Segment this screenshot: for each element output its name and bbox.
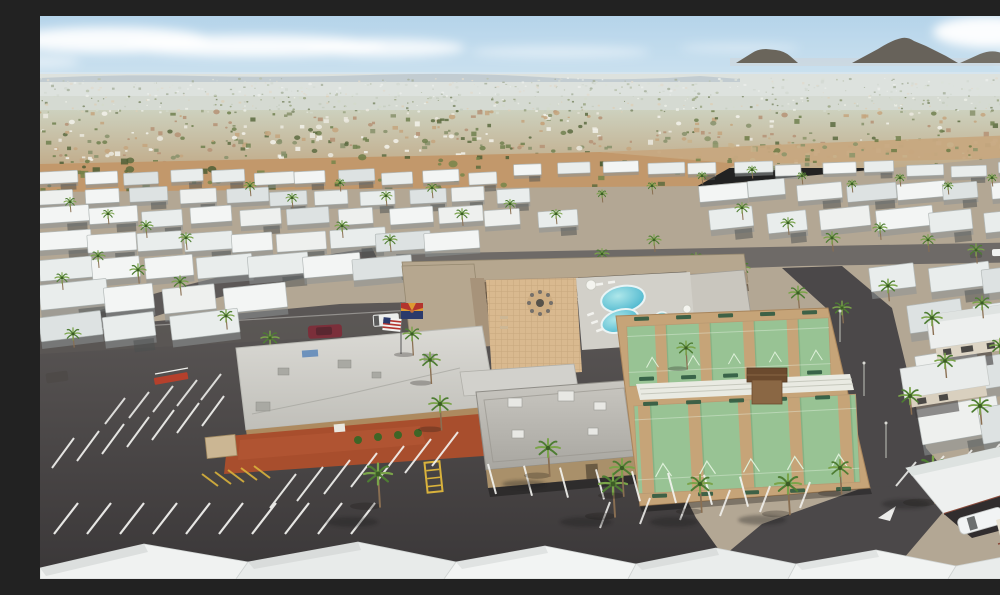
texture-dot	[985, 108, 986, 109]
texture-dot	[807, 100, 809, 102]
mobile-home	[314, 190, 348, 210]
texture-dot	[449, 161, 458, 168]
mobile-home-roof	[269, 190, 307, 206]
texture-dot	[59, 154, 63, 157]
mobile-home-roof	[314, 190, 348, 206]
texture-dot	[184, 125, 187, 128]
texture-dot	[927, 100, 930, 102]
aerial-photo-canvas	[40, 16, 1000, 579]
palm-shadow	[560, 517, 612, 527]
texture-dot	[975, 108, 977, 109]
palm-crown	[886, 284, 889, 287]
texture-dot	[682, 137, 687, 141]
texture-dot	[547, 107, 550, 110]
mobile-home	[648, 162, 685, 178]
ac-unit	[278, 368, 289, 375]
texture-dot	[567, 120, 570, 122]
texture-dot	[121, 159, 128, 165]
mobile-home-roof	[823, 162, 856, 174]
texture-dot	[255, 108, 257, 109]
roof-skylight	[302, 349, 318, 357]
texture-dot	[889, 97, 890, 98]
texture-dot	[821, 97, 822, 98]
kiosk-shed	[205, 434, 237, 458]
texture-dot	[544, 110, 546, 112]
palm-crown	[786, 482, 791, 487]
palm-shadow	[350, 503, 381, 510]
texture-dot	[344, 143, 348, 146]
texture-dot	[657, 103, 660, 105]
texture-dot	[102, 104, 104, 106]
texture-dot	[500, 141, 505, 145]
texture-dot	[435, 117, 439, 120]
palm-crown	[930, 316, 934, 320]
texture-dot	[910, 109, 912, 110]
texture-dot	[105, 97, 106, 98]
mobile-home-roof	[144, 254, 194, 279]
court-bench	[723, 373, 738, 378]
mobile-home-roof	[89, 205, 138, 224]
texture-dot	[585, 109, 587, 111]
palm-shadow	[676, 508, 702, 514]
texture-dot	[394, 99, 396, 100]
mobile-home-roof	[423, 169, 460, 183]
texture-dot	[703, 96, 705, 97]
texture-dot	[231, 104, 233, 105]
texture-dot	[796, 103, 798, 105]
texture-dot	[765, 99, 768, 101]
texture-dot	[823, 110, 826, 112]
texture-dot	[300, 125, 304, 129]
patio-umbrella	[586, 280, 596, 290]
texture-dot	[496, 112, 499, 114]
texture-dot	[854, 103, 856, 104]
palm-crown	[69, 201, 71, 203]
texture-dot	[77, 109, 78, 110]
palm-crown	[61, 277, 64, 280]
texture-dot	[914, 99, 916, 100]
texture-dot	[407, 112, 409, 114]
mobile-home	[775, 164, 801, 179]
palm-shadow	[668, 366, 688, 371]
texture-dot	[568, 110, 570, 112]
texture-dot	[67, 147, 71, 151]
texture-dot	[250, 117, 255, 121]
texture-dot	[272, 110, 273, 111]
palm-shadow	[818, 490, 842, 496]
mobile-home	[137, 231, 183, 257]
texture-dot	[378, 105, 382, 108]
texture-dot	[717, 136, 720, 138]
carport-shadow	[230, 182, 243, 189]
palm-shadow	[524, 472, 550, 478]
texture-dot	[422, 139, 428, 144]
texture-dot	[929, 106, 931, 107]
texture-dot	[529, 136, 532, 138]
texture-dot	[377, 109, 379, 111]
palm-crown	[796, 291, 799, 294]
light-pole-head	[863, 362, 866, 365]
texture-dot	[779, 111, 781, 113]
texture-dot	[417, 110, 420, 112]
texture-dot	[100, 122, 104, 125]
texture-dot	[567, 99, 570, 101]
texture-dot	[582, 110, 583, 111]
mobile-home-roof	[603, 161, 639, 173]
texture-dot	[461, 137, 465, 140]
texture-dot	[355, 110, 357, 111]
mobile-home-roof	[40, 229, 92, 251]
texture-dot	[927, 125, 930, 127]
texture-dot	[607, 104, 608, 105]
texture-dot	[451, 113, 454, 115]
palm-crown	[341, 225, 344, 228]
texture-dot	[244, 125, 247, 128]
texture-dot	[655, 138, 659, 140]
texture-dot	[295, 111, 296, 112]
texture-dot	[69, 130, 72, 132]
carport-shadow	[485, 185, 496, 192]
mobile-home	[484, 208, 521, 231]
texture-dot	[909, 112, 913, 115]
texture-dot	[167, 129, 172, 133]
texture-dot	[664, 111, 666, 112]
texture-dot	[125, 99, 128, 101]
palm-crown	[751, 169, 753, 171]
palm-crown	[698, 482, 702, 486]
texture-dot	[805, 158, 810, 161]
texture-dot	[568, 147, 572, 150]
texture-dot	[220, 104, 222, 106]
texture-dot	[472, 137, 477, 141]
courtyard-chair	[500, 326, 508, 329]
mobile-home	[389, 206, 434, 230]
texture-dot	[936, 110, 938, 111]
texture-dot	[135, 137, 137, 139]
texture-dot	[287, 112, 292, 115]
texture-dot	[477, 137, 482, 139]
texture-dot	[912, 97, 915, 99]
texture-dot	[443, 135, 447, 137]
texture-dot	[770, 133, 774, 135]
texture-dot	[581, 107, 583, 109]
texture-dot	[694, 128, 699, 132]
court-bench	[639, 376, 654, 381]
texture-dot	[781, 105, 784, 107]
texture-dot	[91, 112, 95, 115]
texture-dot	[990, 107, 992, 109]
texture-dot	[700, 106, 702, 108]
texture-dot	[596, 112, 598, 114]
texture-dot	[438, 159, 443, 163]
texture-dot	[310, 112, 313, 114]
aerial-photo	[40, 16, 1000, 579]
mobile-home-roof	[375, 230, 431, 252]
texture-dot	[476, 166, 481, 169]
palm-crown	[978, 404, 982, 408]
texture-dot	[853, 142, 858, 146]
mobile-home	[603, 161, 639, 177]
texture-dot	[396, 105, 398, 106]
texture-dot	[219, 108, 220, 109]
texture-dot	[583, 103, 586, 105]
texture-dot	[763, 135, 767, 138]
mobile-home-roof	[286, 206, 329, 225]
palm-crown	[851, 183, 853, 185]
carport-shadow	[561, 227, 577, 236]
texture-dot	[364, 151, 368, 153]
texture-dot	[863, 115, 868, 118]
texture-dot	[476, 128, 479, 131]
texture-dot	[426, 101, 428, 102]
texture-dot	[71, 161, 74, 163]
texture-dot	[372, 122, 375, 125]
texture-dot	[777, 105, 779, 106]
texture-dot	[641, 98, 643, 100]
shuffleboard-bank-south	[634, 394, 860, 493]
palm-shadow	[394, 352, 414, 357]
texture-dot	[232, 127, 237, 131]
texture-dot	[226, 140, 228, 142]
mobile-home	[254, 171, 294, 189]
texture-dot	[185, 108, 188, 110]
texture-dot	[232, 145, 236, 148]
texture-dot	[631, 104, 634, 106]
palm-crown	[461, 213, 464, 216]
texture-dot	[536, 108, 539, 110]
palm-crown	[684, 346, 687, 349]
texture-dot	[72, 108, 74, 110]
texture-dot	[971, 103, 973, 104]
maroon-car-roof	[316, 327, 332, 336]
court-bench	[807, 370, 822, 375]
texture-dot	[215, 104, 217, 106]
texture-dot	[429, 96, 432, 99]
texture-dot	[154, 98, 156, 100]
texture-dot	[624, 101, 625, 102]
texture-dot	[554, 111, 560, 116]
texture-dot	[900, 111, 903, 113]
palm-crown	[620, 466, 624, 470]
texture-dot	[157, 136, 163, 141]
texture-dot	[356, 146, 360, 149]
texture-dot	[344, 106, 346, 107]
texture-dot	[485, 111, 489, 115]
mobile-home-roof	[240, 208, 282, 227]
palm-crown	[339, 182, 341, 184]
carport-shadow	[735, 228, 753, 240]
texture-dot	[273, 98, 274, 99]
texture-dot	[476, 157, 480, 160]
ac-unit	[256, 402, 270, 411]
palm-shadow	[326, 517, 378, 527]
texture-dot	[745, 136, 750, 140]
texture-dot	[905, 97, 906, 98]
texture-dot	[42, 130, 46, 132]
texture-dot	[844, 104, 846, 105]
palm-crown	[831, 237, 834, 240]
texture-dot	[93, 167, 100, 172]
carport-shadow	[151, 202, 167, 210]
texture-dot	[598, 136, 602, 140]
texture-dot	[270, 140, 276, 144]
palm-crown	[787, 222, 790, 225]
texture-dot	[405, 150, 409, 152]
texture-dot	[939, 129, 943, 132]
texture-dot	[838, 104, 839, 105]
texture-dot	[233, 125, 236, 127]
texture-dot	[492, 98, 493, 99]
texture-dot	[228, 142, 231, 145]
texture-dot	[180, 137, 185, 140]
texture-dot	[663, 131, 666, 133]
courtyard-chair	[500, 316, 508, 319]
texture-dot	[185, 123, 188, 125]
texture-dot	[151, 127, 155, 131]
texture-dot	[541, 116, 544, 118]
mobile-home-roof	[294, 170, 325, 184]
texture-dot	[437, 119, 442, 123]
mobile-home-roof	[469, 172, 497, 185]
texture-dot	[286, 96, 287, 97]
palm-shadow	[650, 517, 698, 527]
texture-dot	[861, 149, 863, 151]
texture-dot	[65, 101, 67, 102]
mobile-home	[123, 172, 158, 189]
arizona-flag-star	[410, 309, 414, 313]
texture-dot	[141, 110, 143, 112]
texture-dot	[828, 113, 830, 114]
mobile-home-roof	[40, 170, 78, 184]
texture-dot	[395, 110, 396, 111]
texture-dot	[416, 132, 420, 136]
texture-dot	[216, 99, 218, 100]
texture-dot	[282, 101, 284, 103]
texture-dot	[685, 100, 686, 101]
texture-dot	[785, 110, 787, 112]
texture-dot	[97, 100, 99, 101]
mobile-home	[286, 206, 330, 230]
texture-dot	[607, 146, 612, 149]
texture-dot	[308, 128, 313, 132]
palm-crown	[268, 336, 271, 339]
texture-dot	[627, 103, 629, 104]
mobile-home-roof	[87, 232, 137, 253]
texture-dot	[937, 135, 939, 137]
mobile-home-roof	[338, 207, 373, 225]
texture-dot	[231, 131, 233, 133]
texture-dot	[477, 110, 482, 114]
court-bench	[744, 490, 759, 495]
texture-dot	[53, 155, 56, 157]
texture-dot	[937, 97, 939, 98]
texture-dot	[64, 154, 67, 156]
texture-dot	[490, 110, 494, 113]
texture-dot	[279, 99, 282, 101]
mobile-home	[984, 208, 1000, 239]
texture-dot	[871, 100, 873, 102]
texture-dot	[844, 114, 849, 117]
texture-dot	[683, 108, 685, 109]
texture-dot	[955, 147, 958, 150]
carport-shadow	[954, 231, 972, 243]
shrub	[374, 433, 382, 441]
mobile-home-roof	[389, 206, 433, 225]
carport-shadow	[189, 182, 202, 189]
mobile-home	[85, 188, 120, 208]
texture-dot	[170, 113, 175, 116]
palm-crown	[975, 249, 978, 252]
texture-dot	[188, 100, 189, 101]
texture-dot	[487, 124, 491, 127]
texture-dot	[361, 136, 363, 138]
texture-dot	[775, 152, 778, 154]
texture-dot	[208, 181, 213, 185]
texture-dot	[669, 131, 672, 133]
texture-dot	[656, 135, 659, 137]
texture-dot	[761, 98, 764, 100]
palm-crown	[375, 471, 380, 476]
palm-crown	[179, 281, 182, 284]
palm-crown	[410, 332, 413, 335]
palm-crown	[801, 175, 803, 177]
rec-building	[460, 364, 646, 497]
texture-dot	[899, 98, 901, 99]
texture-dot	[540, 145, 545, 148]
palm-crown	[653, 239, 656, 242]
texture-dot	[576, 146, 582, 151]
palm-crown	[137, 269, 140, 272]
texture-dot	[96, 141, 101, 144]
patio-chair	[546, 309, 550, 313]
court-bench	[634, 316, 649, 321]
texture-dot	[658, 116, 661, 118]
texture-dot	[171, 156, 176, 160]
texture-dot	[577, 112, 579, 113]
texture-dot	[937, 126, 942, 130]
texture-dot	[142, 144, 147, 147]
texture-dot	[406, 107, 408, 109]
ac-unit	[594, 402, 606, 410]
texture-dot	[927, 102, 930, 104]
texture-dot	[988, 106, 990, 107]
texture-dot	[517, 146, 521, 149]
texture-dot	[861, 123, 864, 126]
texture-dot	[742, 96, 744, 98]
texture-dot	[871, 121, 874, 124]
texture-dot	[234, 112, 236, 114]
texture-dot	[895, 104, 897, 105]
court-bench	[760, 312, 775, 317]
texture-dot	[658, 182, 665, 186]
patio-chair	[527, 301, 531, 305]
court-bench	[676, 315, 691, 320]
texture-dot	[857, 104, 858, 105]
us-flag-canton	[383, 317, 391, 324]
texture-dot	[946, 105, 948, 107]
texture-dot	[131, 132, 134, 134]
texture-dot	[412, 101, 413, 102]
texture-dot	[990, 111, 992, 112]
texture-dot	[942, 116, 946, 119]
palm-shadow	[882, 499, 930, 509]
carport-shadow	[116, 223, 136, 232]
texture-dot	[898, 107, 900, 109]
texture-dot	[433, 96, 435, 97]
texture-dot	[906, 139, 908, 141]
texture-dot	[658, 98, 661, 100]
texture-dot	[489, 139, 493, 142]
